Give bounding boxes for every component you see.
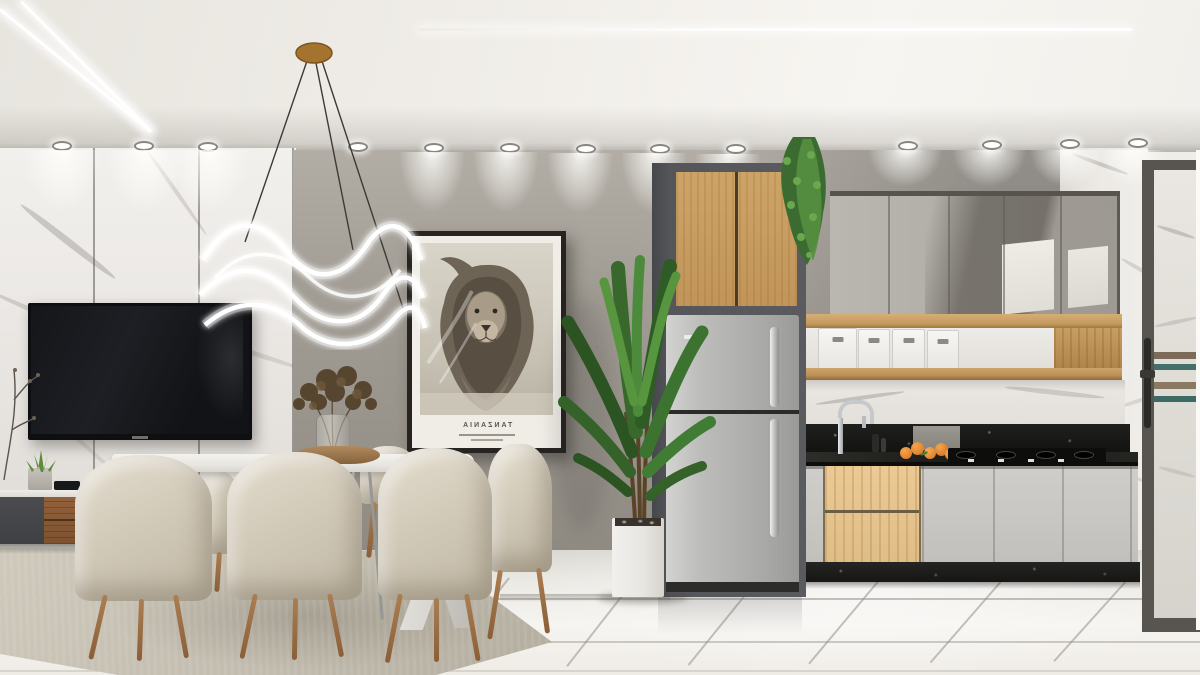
door-handle [1144, 338, 1151, 428]
gas-cooktop [948, 448, 1106, 463]
storage-bin [818, 328, 857, 370]
fridge-handle-upper [770, 327, 779, 407]
dining-chair [227, 452, 362, 660]
door-reflection-slat [1154, 352, 1196, 359]
apartment-interior-render: TANZANIA [0, 0, 1200, 675]
oak-drawer-unit [823, 466, 921, 562]
granite-kickboard [788, 562, 1140, 582]
chandelier [185, 30, 440, 350]
dining-chair [75, 455, 212, 660]
floor-grout-line [930, 577, 1005, 663]
door-reflection-slat [1154, 382, 1196, 389]
kickboard-floor-shadow [788, 582, 1140, 589]
tall-plant [552, 252, 717, 542]
lion-eye [475, 309, 480, 314]
floor-grout-line [1053, 577, 1129, 662]
burner [1036, 451, 1056, 459]
open-shelf-bottom [793, 368, 1122, 380]
bin-handle-slot [869, 338, 880, 343]
spotlight [982, 140, 1002, 150]
door-handle-crossbar [1140, 370, 1155, 378]
mirror-window-reflection [1068, 246, 1108, 308]
ceiling-spotlights [0, 0, 1200, 160]
lion-eye [493, 309, 498, 314]
bin-handle-slot [938, 339, 949, 344]
burner [956, 451, 976, 459]
open-shelf-back-wood [1054, 328, 1122, 368]
cabinet-door-gap [735, 172, 738, 306]
kitchen-faucet-arc [838, 400, 874, 424]
fridge-base [666, 582, 799, 592]
burner [996, 451, 1016, 459]
cabinet-top-shadow [830, 191, 1120, 196]
burner [1074, 451, 1094, 459]
kitchen-faucet-spout [862, 416, 866, 428]
door-reflection-slat [1154, 364, 1196, 370]
mirror-window-reflection [1002, 239, 1054, 314]
bin-handle-slot [903, 338, 914, 343]
mirror-upper-cabinets [830, 196, 1120, 318]
kitchen-faucet-body [838, 418, 843, 454]
open-shelf-top [793, 314, 1122, 328]
soap-bottle [881, 438, 886, 452]
soap-bottle [872, 434, 879, 452]
spotlight [726, 144, 746, 154]
cooktop-controls [968, 459, 1088, 462]
drawer-gap [825, 510, 919, 513]
door-reflection-slat [1154, 396, 1196, 402]
bin-handle-slot [832, 337, 843, 342]
pendant-canopy [296, 43, 332, 63]
fridge-handle-lower [770, 419, 779, 537]
glass-door-pane [1154, 170, 1196, 618]
hanging-plant [763, 133, 855, 275]
planter [612, 518, 664, 597]
floor-grout-line [808, 577, 882, 664]
wall-glow [15, 150, 110, 270]
storage-bin [858, 329, 890, 370]
spotlight [1060, 139, 1080, 149]
dining-chair [378, 448, 492, 665]
spotlight [1128, 138, 1148, 148]
poster-subtitle-line [471, 439, 503, 441]
planter-soil [615, 518, 661, 526]
storage-bin [892, 329, 925, 370]
dining-chair [488, 444, 552, 640]
base-cabinets [795, 466, 1138, 562]
poster-title: TANZANIA [412, 422, 561, 429]
twig-branch-decor [0, 330, 48, 480]
storage-bin [927, 330, 959, 370]
poster-subtitle-line [459, 434, 515, 436]
outdoor-light-edge [1196, 150, 1200, 630]
tv-brand-bar [132, 436, 148, 439]
